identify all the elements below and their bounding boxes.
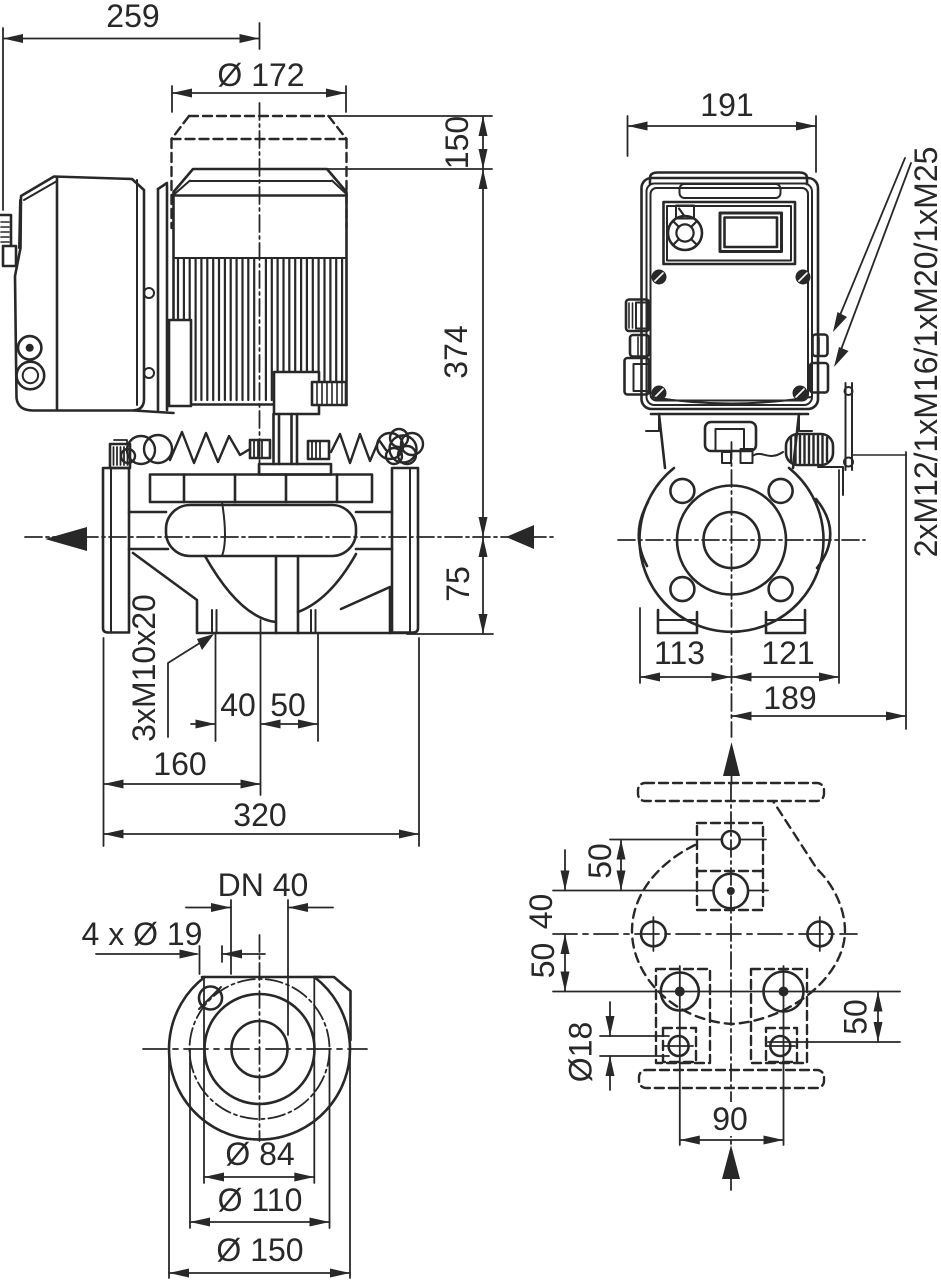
svg-text:320: 320	[233, 797, 286, 833]
svg-text:3xM10x20: 3xM10x20	[126, 594, 162, 742]
svg-text:50: 50	[525, 943, 561, 979]
svg-text:50: 50	[270, 687, 306, 723]
svg-text:75: 75	[440, 566, 476, 602]
svg-text:259: 259	[106, 0, 159, 34]
svg-text:150: 150	[439, 116, 475, 169]
svg-text:50: 50	[838, 999, 874, 1035]
svg-text:113: 113	[654, 635, 705, 671]
svg-text:189: 189	[763, 680, 816, 716]
svg-text:DN 40: DN 40	[218, 867, 309, 903]
svg-text:Ø18: Ø18	[563, 1022, 599, 1082]
svg-text:Ø 84: Ø 84	[225, 1136, 294, 1172]
svg-text:160: 160	[153, 746, 206, 782]
svg-text:Ø 172: Ø 172	[217, 57, 304, 93]
svg-text:4 x Ø 19: 4 x Ø 19	[82, 916, 203, 952]
svg-text:40: 40	[523, 894, 559, 930]
svg-text:50: 50	[582, 843, 618, 879]
svg-text:Ø 110: Ø 110	[218, 1182, 303, 1218]
svg-text:2xM12/1xM16/1xM20/1xM25: 2xM12/1xM16/1xM20/1xM25	[908, 147, 941, 558]
svg-text:40: 40	[220, 687, 256, 723]
svg-text:Ø 150: Ø 150	[216, 1232, 303, 1268]
svg-text:191: 191	[700, 87, 753, 123]
svg-text:374: 374	[438, 325, 474, 378]
svg-text:121: 121	[761, 635, 814, 671]
svg-text:90: 90	[712, 1101, 748, 1137]
